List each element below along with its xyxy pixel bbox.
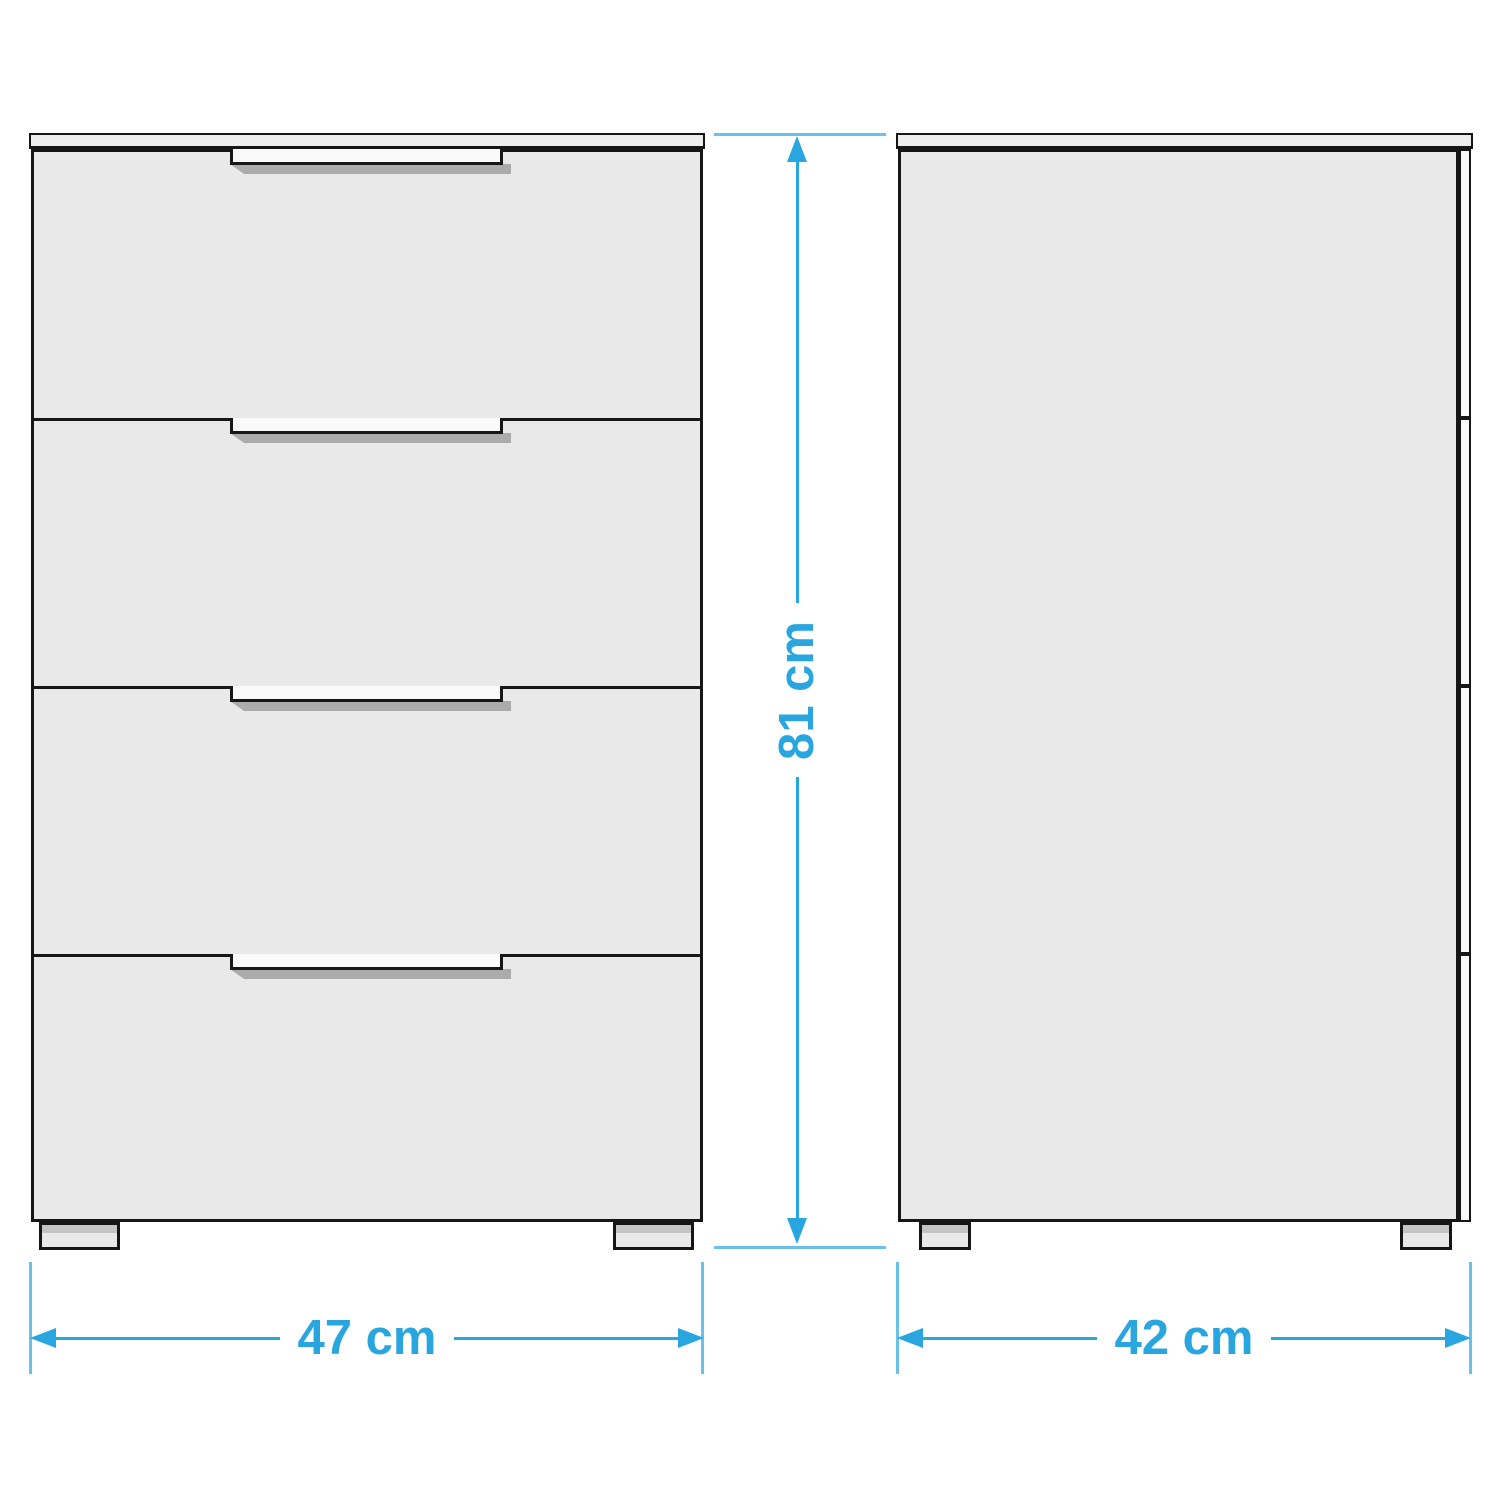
front-foot-right xyxy=(613,1222,694,1250)
drawer-front-1 xyxy=(34,152,700,418)
height-dimension-line: 81 cm xyxy=(779,136,815,1244)
handle-shadow xyxy=(230,701,511,711)
width-dimension-line: 47 cm xyxy=(30,1320,704,1356)
handle-shadow xyxy=(230,164,511,174)
arrowhead-down-icon xyxy=(787,1218,807,1244)
extension-line-bottom xyxy=(714,1246,886,1249)
drawer-handle-1 xyxy=(230,149,503,165)
arrowhead-right-icon xyxy=(1445,1328,1471,1348)
arrowhead-up-icon xyxy=(787,136,807,162)
dimension-line-segment xyxy=(56,1337,280,1340)
front-top-panel xyxy=(29,133,705,149)
drawer-handle-3 xyxy=(230,686,503,702)
drawer-handle-2 xyxy=(230,418,503,434)
side-drawer-edge-3 xyxy=(1459,686,1471,954)
arrowhead-right-icon xyxy=(678,1328,704,1348)
dimension-diagram: 47 cm 81 cm 42 cm xyxy=(0,0,1500,1500)
side-foot-right xyxy=(1400,1222,1452,1250)
depth-dimension-line: 42 cm xyxy=(897,1320,1471,1356)
extension-line-right xyxy=(701,1262,704,1374)
extension-line-left xyxy=(29,1262,32,1374)
dimension-line-segment xyxy=(1271,1337,1445,1340)
foot-shadow-cap xyxy=(616,1225,691,1233)
height-dimension-label: 81 cm xyxy=(773,603,822,778)
side-top-panel xyxy=(896,133,1473,149)
side-foot-left xyxy=(919,1222,971,1250)
arrowhead-left-icon xyxy=(897,1328,923,1348)
dimension-line-segment xyxy=(454,1337,678,1340)
drawer-front-2 xyxy=(34,418,700,686)
side-drawer-edge-2 xyxy=(1459,418,1471,686)
side-drawer-edge-4 xyxy=(1459,954,1471,1222)
dimension-line-segment xyxy=(923,1337,1097,1340)
extension-line-right xyxy=(1469,1262,1472,1374)
arrowhead-left-icon xyxy=(30,1328,56,1348)
depth-dimension-label: 42 cm xyxy=(1097,1314,1272,1363)
side-drawer-edge-1 xyxy=(1459,149,1471,418)
drawer-front-4 xyxy=(34,954,700,1219)
handle-shadow xyxy=(230,969,511,979)
side-body xyxy=(898,149,1459,1222)
foot-shadow-cap xyxy=(42,1225,117,1233)
foot-shadow-cap xyxy=(922,1225,968,1233)
handle-shadow xyxy=(230,433,511,443)
extension-line-left xyxy=(896,1262,899,1374)
foot-shadow-cap xyxy=(1403,1225,1449,1233)
drawer-handle-4 xyxy=(230,954,503,970)
front-foot-left xyxy=(39,1222,120,1250)
dimension-line-segment xyxy=(796,777,799,1218)
drawer-front-3 xyxy=(34,686,700,954)
dimension-line-segment xyxy=(796,162,799,603)
width-dimension-label: 47 cm xyxy=(280,1314,455,1363)
